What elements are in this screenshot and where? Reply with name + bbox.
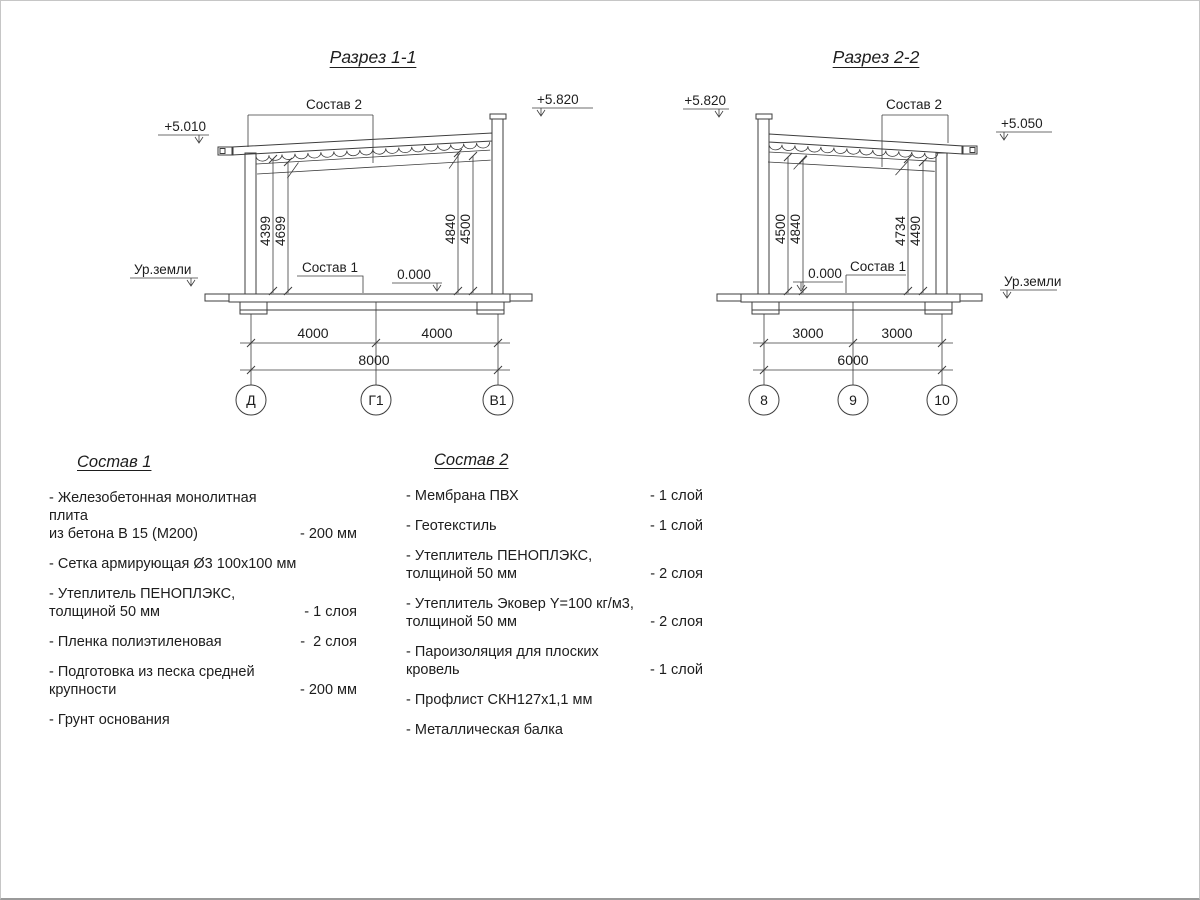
item-text: - Пленка полиэтиленовая — [49, 633, 222, 651]
dimension-label: 4734 — [893, 215, 908, 246]
elevation-mark-left: +5.820 — [683, 93, 729, 117]
axis-label: 8 — [760, 392, 768, 408]
elevation-mark-label: +5.820 — [684, 93, 726, 108]
item-value: - 2 слоя — [650, 565, 703, 583]
item-value: - 2 слоя — [300, 633, 357, 651]
list-item: - Геотекстиль - 1 слой — [406, 517, 703, 535]
list-item: - Сетка армирующая Ø3 100х100 мм — [49, 555, 357, 573]
dimension-label: 4840 — [788, 214, 803, 244]
list-item: - Железобетонная монолитная плита из бет… — [49, 489, 357, 543]
span-dimensions: 4000 4000 8000 — [240, 302, 510, 385]
item-text: - Утеплитель ПЕНОПЛЭКС, толщиной 50 мм — [406, 547, 592, 583]
list-item: - Подготовка из песка средней крупности … — [49, 663, 357, 699]
span-dimensions: 3000 3000 6000 — [753, 302, 953, 385]
axis-label: 9 — [849, 392, 857, 408]
item-text: - Утеплитель ПЕНОПЛЭКС, толщиной 50 мм — [49, 585, 235, 621]
axis-label: В1 — [489, 392, 506, 408]
item-text: - Металлическая балка — [406, 721, 563, 739]
item-value: - 1 слой — [650, 517, 703, 535]
dimension-label: 3000 — [792, 325, 823, 341]
dimension-label: 4500 — [773, 214, 788, 244]
zero-level-mark: 0.000 — [793, 266, 843, 291]
zero-level-label: 0.000 — [808, 266, 842, 281]
dimension-label: 8000 — [358, 352, 389, 368]
floor-callout-label: Состав 1 — [850, 259, 906, 274]
floor — [205, 294, 532, 314]
composition-1-list: Состав 1 - Железобетонная монолитная пли… — [49, 453, 357, 741]
floor-callout: Состав 1 — [297, 260, 363, 293]
elevation-mark-left: +5.010 — [158, 119, 209, 143]
item-value: - 1 слой — [650, 487, 703, 505]
elevation-arrow-icon — [195, 135, 203, 143]
axis-label: Г1 — [368, 392, 384, 408]
elevation-arrow-icon — [187, 278, 195, 286]
item-text: - Подготовка из песка средней крупности — [49, 663, 255, 699]
roof-callout-label: Состав 2 — [306, 97, 362, 112]
composition-2-list: Состав 2 - Мембрана ПВХ - 1 слой - Геоте… — [406, 451, 703, 751]
zero-level-label: 0.000 — [397, 267, 431, 282]
dimension-label: 4490 — [908, 216, 923, 246]
composition-1-title: Состав 1 — [77, 453, 357, 472]
roof — [768, 134, 977, 177]
item-text: - Железобетонная монолитная плита из бет… — [49, 489, 292, 543]
elevation-arrow-icon — [1003, 290, 1011, 298]
elevation-arrow-icon — [537, 108, 545, 116]
item-value: - 1 слой — [650, 661, 703, 679]
floor — [717, 294, 982, 314]
list-item: - Грунт основания — [49, 711, 357, 729]
axis-markers: 8 9 10 — [749, 385, 957, 415]
axis-label: Д — [246, 392, 256, 408]
dimension-label: 4399 — [258, 216, 273, 246]
walls — [245, 114, 506, 294]
height-dimensions: 4399 4699 4840 4500 — [258, 149, 477, 295]
dimension-label: 4000 — [421, 325, 452, 341]
axis-markers: Д Г1 В1 — [236, 385, 513, 415]
dimension-label: 4840 — [443, 214, 458, 244]
item-text: - Сетка армирующая Ø3 100х100 мм — [49, 555, 296, 573]
sections-drawing: 4399 4699 4840 4500 Состав 2 Состав 1 0.… — [1, 1, 1199, 441]
elevation-mark-label: +5.050 — [1001, 116, 1043, 131]
ground-level-label: Ур.земли — [134, 262, 191, 277]
item-text: - Профлист СКН127х1,1 мм — [406, 691, 592, 709]
section-1-drawing: 4399 4699 4840 4500 Состав 2 Состав 1 0.… — [130, 92, 593, 415]
dimension-label: 4500 — [458, 214, 473, 244]
list-item: - Пароизоляция для плоских кровель - 1 с… — [406, 643, 703, 679]
elevation-mark-right: +5.820 — [532, 92, 593, 116]
zero-level-mark: 0.000 — [392, 267, 442, 291]
elevation-arrow-icon — [715, 109, 723, 117]
ground-level-mark: Ур.земли — [1000, 274, 1061, 298]
dimension-label: 4699 — [273, 216, 288, 246]
item-text: - Утеплитель Эковер Y=100 кг/м3, толщино… — [406, 595, 634, 631]
deck-profile — [768, 144, 938, 177]
elevation-mark-right: +5.050 — [996, 116, 1052, 140]
composition-2-title: Состав 2 — [434, 451, 703, 470]
roof-callout-label: Состав 2 — [886, 97, 942, 112]
ground-level-label: Ур.земли — [1004, 274, 1061, 289]
item-text: - Геотекстиль — [406, 517, 497, 535]
roof — [218, 133, 492, 180]
item-value: - 2 слоя — [650, 613, 703, 631]
list-item: - Утеплитель Эковер Y=100 кг/м3, толщино… — [406, 595, 703, 631]
drawing-sheet: Разрез 1-1 Разрез 2-2 — [0, 0, 1200, 900]
list-item: - Пленка полиэтиленовая - 2 слоя — [49, 633, 357, 651]
list-item: - Утеплитель ПЕНОПЛЭКС, толщиной 50 мм -… — [49, 585, 357, 621]
elevation-arrow-icon — [433, 283, 441, 291]
item-value: - 1 слоя — [304, 603, 357, 621]
item-value: - 200 мм — [300, 681, 357, 699]
ground-level-mark: Ур.земли — [130, 262, 198, 286]
section-2-drawing: 4500 4840 4734 4490 Состав 2 Состав 1 0.… — [683, 93, 1061, 415]
elevation-arrow-icon — [1000, 132, 1008, 140]
list-item: - Мембрана ПВХ - 1 слой — [406, 487, 703, 505]
elevation-mark-label: +5.010 — [164, 119, 206, 134]
item-value: - 200 мм — [300, 525, 357, 543]
list-item: - Профлист СКН127х1,1 мм — [406, 691, 703, 709]
dimension-label: 6000 — [837, 352, 868, 368]
elevation-mark-label: +5.820 — [537, 92, 579, 107]
list-item: - Утеплитель ПЕНОПЛЭКС, толщиной 50 мм -… — [406, 547, 703, 583]
list-item: - Металлическая балка — [406, 721, 703, 739]
floor-callout-label: Состав 1 — [302, 260, 358, 275]
dimension-label: 3000 — [881, 325, 912, 341]
item-text: - Мембрана ПВХ — [406, 487, 519, 505]
floor-callout: Состав 1 — [846, 259, 906, 293]
item-text: - Грунт основания — [49, 711, 170, 729]
dimension-label: 4000 — [297, 325, 328, 341]
axis-label: 10 — [934, 392, 950, 408]
item-text: - Пароизоляция для плоских кровель — [406, 643, 642, 679]
